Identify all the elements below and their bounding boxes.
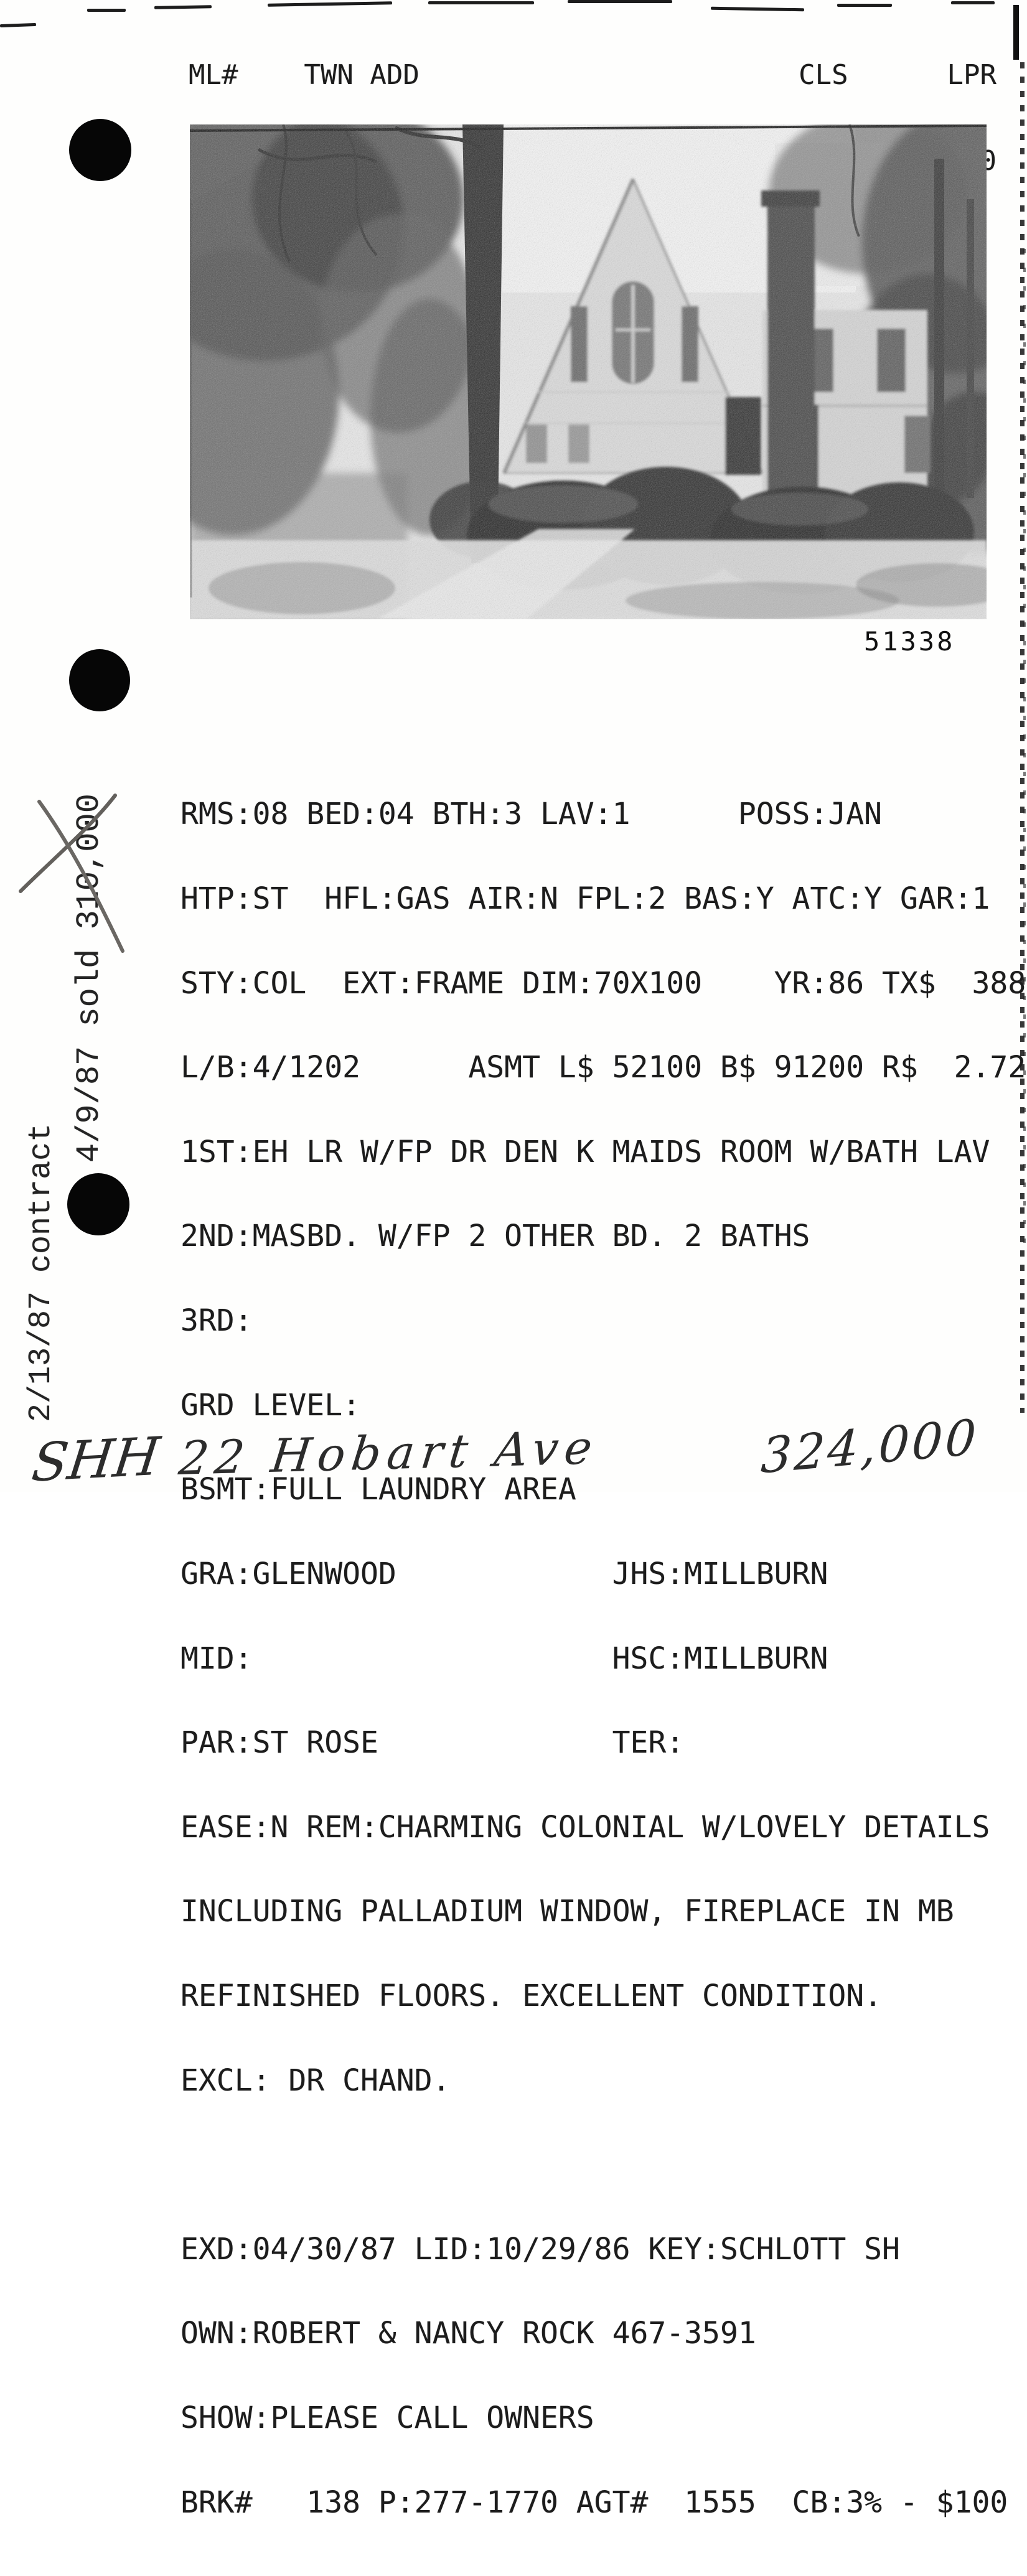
listing-line: 3RD: bbox=[181, 1307, 1027, 1335]
hole-punch-dot bbox=[67, 1173, 129, 1235]
listing-line: L/B:4/1202 ASMT L$ 52100 B$ 91200 R$ 2.7… bbox=[181, 1054, 1027, 1082]
hole-punch-dot bbox=[69, 119, 131, 181]
hole-punch-dot bbox=[69, 649, 130, 711]
handwritten-address: 22 Hobart Ave bbox=[176, 1421, 601, 1486]
header-line-1: ML# TWN ADD CLS LPR bbox=[189, 61, 997, 90]
listing-line: MID: HSC:MILLBURN bbox=[181, 1645, 1027, 1673]
listing-line: RMS:08 BED:04 BTH:3 LAV:1 POSS:JAN bbox=[181, 800, 1027, 828]
listing-line: INCLUDING PALLADIUM WINDOW, FIREPLACE IN… bbox=[181, 1898, 1027, 1926]
listing-line: GRA:GLENWOOD JHS:MILLBURN bbox=[181, 1560, 1027, 1588]
listing-line: SHOW:PLEASE CALL OWNERS bbox=[181, 2404, 1027, 2432]
property-photo bbox=[190, 124, 987, 619]
listing-line: 2ND:MASBD. W/FP 2 OTHER BD. 2 BATHS bbox=[181, 1222, 1027, 1250]
listing-line: REFINISHED FLOORS. EXCELLENT CONDITION. bbox=[181, 1982, 1027, 2010]
scan-artifact-edge-bar bbox=[1013, 5, 1019, 60]
listing-line: STY:COL EXT:FRAME DIM:70X100 YR:86 TX$ 3… bbox=[181, 970, 1027, 998]
photo-id-label: 51338 bbox=[864, 626, 955, 657]
listing-line: OWN:ROBERT & NANCY ROCK 467-3591 bbox=[181, 2320, 1027, 2348]
listing-line: EXCL: DR CHAND. bbox=[181, 2067, 1027, 2095]
listing-line: PAR:ST ROSE TER: bbox=[181, 1729, 1027, 1757]
listing-line: EXD:04/30/87 LID:10/29/86 KEY:SCHLOTT SH bbox=[181, 2236, 1027, 2264]
listing-line: GRD LEVEL: bbox=[181, 1392, 1027, 1420]
sold-price-strikethrough bbox=[16, 778, 177, 977]
scan-artifact-dash bbox=[0, 23, 36, 27]
scan-artifact-dash bbox=[568, 0, 672, 3]
listing-body: RMS:08 BED:04 BTH:3 LAV:1 POSS:JAN HTP:S… bbox=[181, 744, 1027, 2573]
handwritten-area-code: SHH bbox=[29, 1425, 163, 1493]
listing-line: 1ST:EH LR W/FP DR DEN K MAIDS ROOM W/BAT… bbox=[181, 1138, 1027, 1166]
listing-line: EASE:N REM:CHARMING COLONIAL W/LOVELY DE… bbox=[181, 1814, 1027, 1842]
listing-line: HTP:ST HFL:GAS AIR:N FPL:2 BAS:Y ATC:Y G… bbox=[181, 885, 1027, 913]
listing-line bbox=[181, 2151, 1027, 2179]
scan-artifact-dash bbox=[87, 9, 126, 12]
annotation-contract-date: 2/13/87 contract bbox=[24, 1123, 59, 1422]
scanned-mls-listing-sheet: ML# TWN ADD CLS LPR 51338 SHH 22 HOBART … bbox=[0, 0, 1027, 1492]
listing-line: BRK# 138 P:277-1770 AGT# 1555 CB:3% - $1… bbox=[181, 2489, 1027, 2517]
